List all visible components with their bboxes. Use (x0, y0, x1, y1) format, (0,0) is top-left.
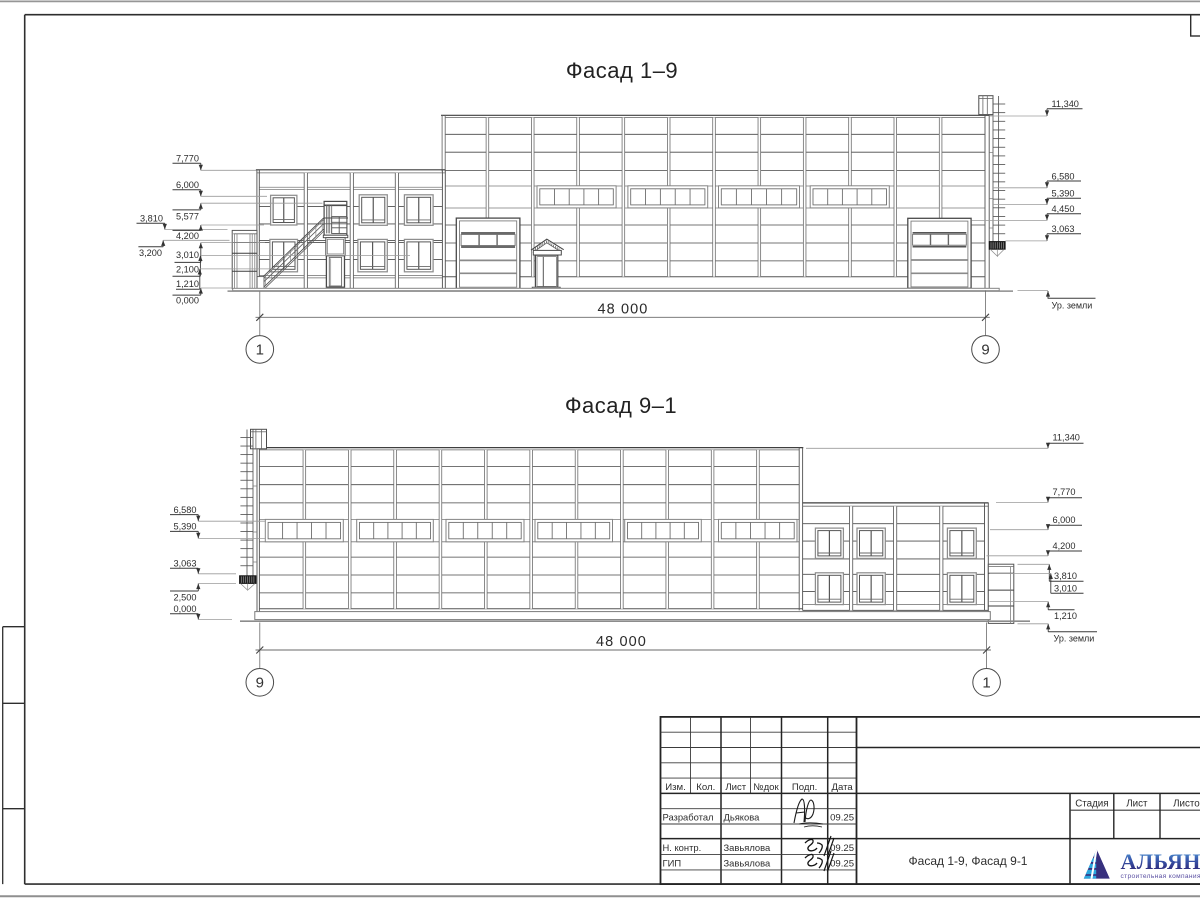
svg-text:1: 1 (982, 675, 990, 692)
svg-text:АЛЬЯНС: АЛЬЯНС (1121, 849, 1200, 874)
svg-text:Ур. земли: Ур. земли (1052, 300, 1093, 310)
svg-text:Завьялова: Завьялова (724, 842, 771, 853)
svg-text:3,010: 3,010 (1054, 583, 1077, 593)
svg-text:строительная компания: строительная компания (1121, 873, 1200, 880)
svg-text:Разработал: Разработал (663, 812, 714, 823)
svg-text:Н. контр.: Н. контр. (663, 842, 702, 853)
svg-text:ГИП: ГИП (663, 857, 682, 868)
svg-text:5,577: 5,577 (176, 212, 199, 222)
svg-text:09.25: 09.25 (830, 858, 854, 869)
svg-text:Фасад 1–9: Фасад 1–9 (566, 58, 678, 83)
svg-text:11,340: 11,340 (1052, 99, 1079, 109)
svg-text:1,210: 1,210 (1054, 611, 1077, 621)
svg-text:3,810: 3,810 (1054, 571, 1077, 581)
svg-text:Лист: Лист (1126, 798, 1148, 809)
svg-text:6,580: 6,580 (174, 505, 197, 515)
svg-text:7,770: 7,770 (1053, 487, 1076, 497)
svg-text:48 000: 48 000 (596, 634, 647, 650)
svg-text:Фасад 1-9, Фасад 9-1: Фасад 1-9, Фасад 9-1 (909, 854, 1028, 868)
svg-text:3,063: 3,063 (1052, 224, 1075, 234)
svg-text:4,200: 4,200 (176, 231, 199, 241)
svg-text:Завьялова: Завьялова (724, 857, 771, 868)
svg-text:Стадия: Стадия (1075, 798, 1108, 809)
svg-text:1: 1 (256, 342, 264, 359)
svg-text:6,000: 6,000 (1053, 515, 1076, 525)
svg-text:4,200: 4,200 (1053, 541, 1076, 551)
svg-text:6,580: 6,580 (1052, 171, 1075, 181)
svg-text:Фасад 9–1: Фасад 9–1 (565, 393, 677, 418)
svg-text:5,390: 5,390 (1052, 188, 1075, 198)
svg-text:5,390: 5,390 (174, 522, 197, 532)
svg-text:9: 9 (981, 342, 989, 359)
svg-text:1,210: 1,210 (176, 279, 199, 289)
svg-text:09.25: 09.25 (830, 813, 854, 824)
svg-text:3,200: 3,200 (139, 248, 162, 258)
svg-text:7,770: 7,770 (176, 153, 199, 163)
svg-text:2,500: 2,500 (174, 593, 197, 603)
svg-text:09.25: 09.25 (830, 843, 854, 854)
svg-text:9: 9 (256, 675, 264, 692)
svg-text:48 000: 48 000 (598, 302, 649, 318)
svg-text:11,340: 11,340 (1053, 432, 1080, 442)
svg-text:0,000: 0,000 (174, 604, 197, 614)
svg-text:Дьякова: Дьякова (724, 812, 761, 823)
svg-text:Кол.: Кол. (696, 782, 715, 793)
svg-text:0,000: 0,000 (176, 296, 199, 306)
svg-text:Ур. земли: Ур. земли (1054, 634, 1095, 644)
svg-text:Изм.: Изм. (665, 782, 686, 793)
svg-text:4,450: 4,450 (1052, 204, 1075, 214)
svg-text:6,000: 6,000 (176, 180, 199, 190)
svg-text:2,100: 2,100 (176, 264, 199, 274)
svg-text:3,063: 3,063 (174, 558, 197, 568)
svg-text:3,810: 3,810 (140, 213, 163, 223)
svg-text:№док: №док (753, 782, 779, 793)
svg-text:Дата: Дата (831, 782, 853, 793)
svg-text:Лист: Лист (725, 782, 746, 793)
svg-text:Листов: Листов (1173, 798, 1200, 809)
svg-text:Подп.: Подп. (792, 782, 817, 793)
svg-text:3,010: 3,010 (176, 250, 199, 260)
